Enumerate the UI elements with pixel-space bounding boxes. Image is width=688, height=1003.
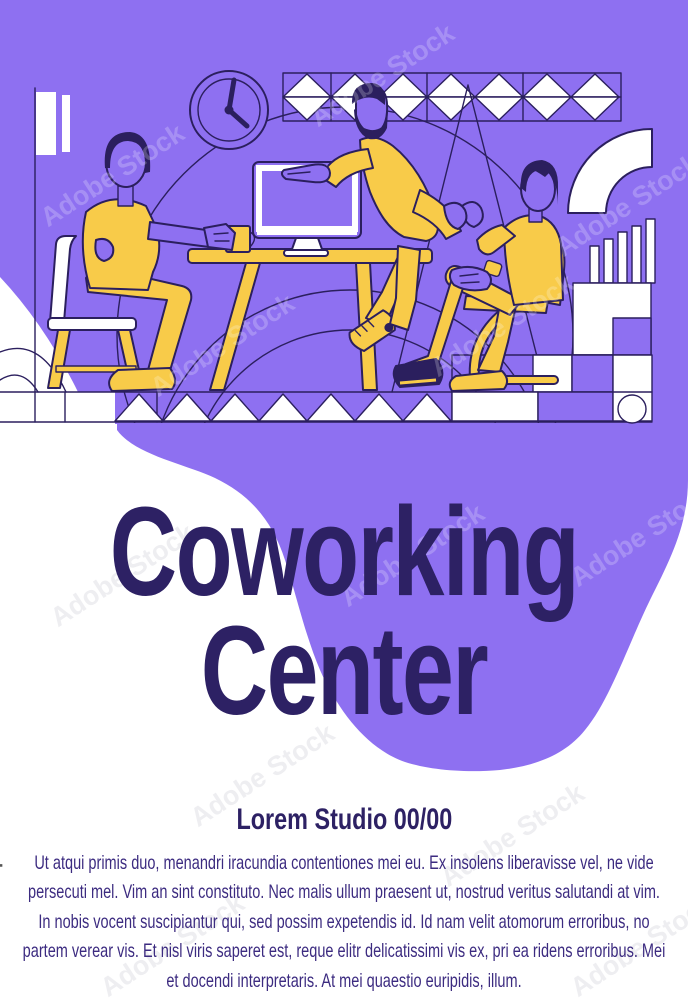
- torso: [504, 215, 563, 305]
- shoe: [109, 368, 175, 391]
- neck: [118, 186, 133, 206]
- hand: [95, 239, 113, 261]
- hand-on-knee: [450, 267, 491, 290]
- torso: [83, 199, 159, 290]
- stock-id-watermark: Adobe Stock | #339489958: [0, 740, 4, 1002]
- poster-title-line2: Center: [89, 611, 598, 730]
- wall-clock-icon: [190, 71, 268, 149]
- wall-panel-light: [36, 92, 56, 155]
- body-paragraph: Ut atqui primis duo, menandri iracundia …: [22, 849, 666, 996]
- hand: [204, 224, 235, 250]
- circle-shape: [618, 395, 646, 423]
- wall-panel-strip: [62, 95, 70, 152]
- studio-subtitle: Lorem Studio 00/00: [0, 803, 688, 837]
- poster-title: Coworking Center: [0, 492, 688, 730]
- studio-subtitle-text: Lorem Studio 00/00: [236, 803, 452, 837]
- poster-title-line1: Coworking: [89, 492, 598, 611]
- chair-seat: [48, 318, 136, 330]
- poster-page: Adobe Stock Adobe Stock Adobe Stock Adob…: [0, 0, 688, 1000]
